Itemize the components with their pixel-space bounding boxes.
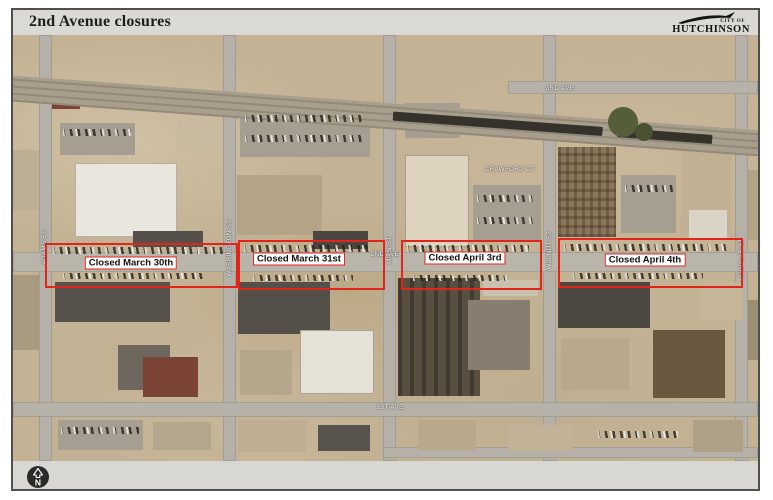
closure-label-march-31: Closed March 31st xyxy=(253,253,345,266)
street-label-crawford: CRAWFORD CT xyxy=(485,167,535,173)
parking-lot xyxy=(60,123,135,155)
parked-cars xyxy=(598,431,678,438)
building xyxy=(75,163,177,237)
building xyxy=(318,425,370,451)
header-band: 2nd Avenue closures xyxy=(13,10,758,35)
tree xyxy=(608,107,638,137)
building xyxy=(418,420,476,450)
flyer-frame: 2nd Avenue closures CITY OF HUTCHINSON xyxy=(11,8,760,491)
parked-cars xyxy=(625,185,673,192)
building xyxy=(143,357,198,397)
closure-label-april-3: Closed April 3rd xyxy=(424,252,505,265)
parking-lot xyxy=(621,175,676,233)
building xyxy=(237,175,322,235)
building xyxy=(468,300,530,370)
building xyxy=(55,282,170,322)
street-label-walnut: WALNUT ST xyxy=(547,231,553,270)
street-label-1st-ave: 1ST AVE xyxy=(376,405,403,411)
building xyxy=(405,155,469,247)
page-title: 2nd Avenue closures xyxy=(29,13,171,31)
building xyxy=(238,420,306,452)
parking-lot xyxy=(473,185,541,240)
closure-label-april-4: Closed April 4th xyxy=(605,254,686,267)
building xyxy=(748,170,758,240)
north-letter: N xyxy=(35,478,41,488)
aerial-map: ADAMS ST WASHINGTON ST MAIN ST WALNUT ST… xyxy=(13,35,758,461)
building xyxy=(748,300,758,360)
closure-zone-april-3 xyxy=(401,240,542,290)
building xyxy=(508,425,573,451)
street-label-main: MAIN ST xyxy=(387,236,393,264)
logo-name: HUTCHINSON xyxy=(672,24,750,35)
building xyxy=(558,147,616,237)
north-arrow-icon: N xyxy=(27,466,49,488)
parked-cars xyxy=(477,217,537,224)
building xyxy=(13,150,39,210)
building xyxy=(300,330,374,394)
building xyxy=(561,338,629,390)
building xyxy=(58,330,116,385)
parked-cars xyxy=(63,129,131,136)
parked-cars xyxy=(61,427,139,434)
parked-cars xyxy=(477,195,537,202)
street-label-3rd-ave: 3RD AVE xyxy=(546,86,574,92)
closure-label-march-30: Closed March 30th xyxy=(85,257,177,270)
building xyxy=(153,422,211,450)
tree xyxy=(635,123,653,141)
building xyxy=(240,350,292,395)
building xyxy=(689,210,727,238)
parked-cars xyxy=(245,115,363,122)
city-logo: CITY OF HUTCHINSON xyxy=(670,11,752,38)
parking-lot xyxy=(58,420,143,450)
footer-band: N xyxy=(13,461,758,489)
building xyxy=(13,275,39,350)
building xyxy=(178,120,218,150)
building xyxy=(653,330,725,398)
building xyxy=(558,282,650,328)
building xyxy=(693,420,743,452)
parked-cars xyxy=(245,135,363,142)
